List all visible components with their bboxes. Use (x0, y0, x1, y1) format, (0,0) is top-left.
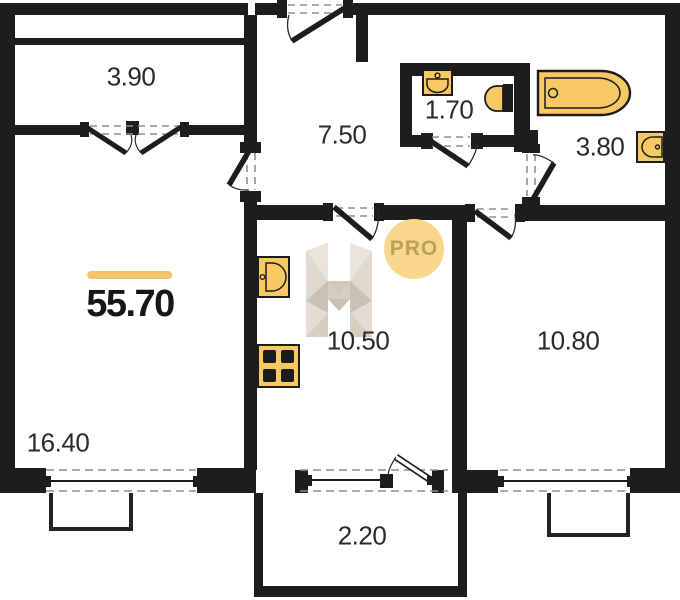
room-area-label-bathroom: 3.80 (576, 132, 625, 163)
room-area-label-bedroom: 10.80 (537, 326, 600, 357)
living-room-window (44, 470, 200, 491)
french-door (86, 126, 181, 153)
room-area-label-balcony: 2.20 (338, 521, 387, 552)
wc-door (429, 137, 477, 166)
kitchen-door (334, 207, 378, 239)
toilet-icon (484, 83, 514, 114)
accent-bar (88, 271, 173, 279)
room-area-label-wc: 1.70 (425, 95, 474, 126)
total-area-label: 55.70 (86, 285, 174, 323)
bedroom-door (475, 209, 516, 238)
bathtub-icon (536, 69, 633, 117)
room-area-label-living: 16.40 (27, 428, 90, 459)
total-area-block: 55.70 (86, 271, 174, 323)
bedroom-window (497, 470, 634, 491)
washbasin-icon (422, 69, 453, 96)
bathroom-door (527, 154, 554, 201)
room-area-label-loggia: 3.90 (107, 62, 156, 93)
living-room-door (229, 151, 255, 190)
stove-icon (257, 344, 300, 388)
room-area-label-hallway: 7.50 (318, 120, 367, 151)
room-area-label-kitchen: 10.50 (327, 326, 390, 357)
floor-plan: PRO (0, 0, 680, 600)
balcony-window-door (300, 457, 448, 491)
washbasin-icon (636, 131, 665, 163)
kitchen-sink-icon (257, 256, 290, 298)
entrance-door (288, 5, 348, 41)
